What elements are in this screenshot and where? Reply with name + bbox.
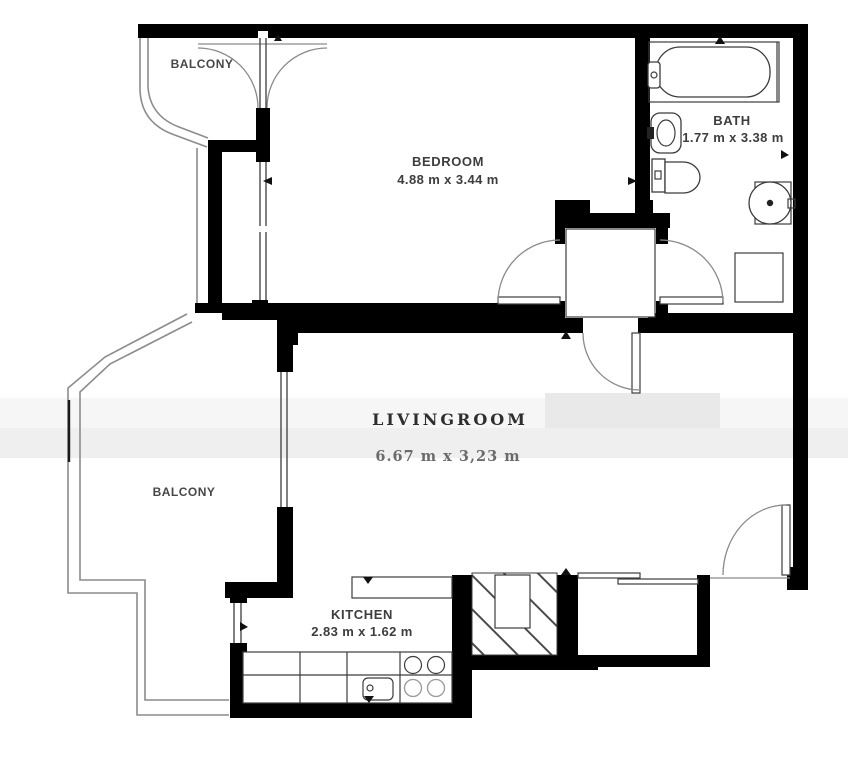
wall-balcony-left [208, 140, 222, 313]
bath-label: BATH [713, 113, 751, 128]
bedroom-balcony-door [198, 38, 327, 108]
bedroom-dimensions: 4.88 m x 3.44 m [397, 172, 498, 187]
wash-basin [647, 113, 681, 153]
wall-hall-bottom-right [638, 318, 670, 333]
hall-livingroom-door [583, 333, 640, 393]
wall-balcony-step [222, 140, 256, 152]
balcony-top-label: BALCONY [171, 57, 234, 71]
wall-bedroom-bottom [222, 303, 565, 320]
wall-bath-bottom [648, 313, 808, 333]
balcony-top-outline-outer [140, 38, 207, 147]
wall-kitchen-right [452, 575, 472, 718]
wall-bedroom-bath [635, 24, 650, 213]
scan-band [545, 393, 720, 428]
bedroom-balcony-window [260, 162, 266, 300]
marker-arrow-icon [781, 150, 789, 159]
marker-arrow-icon [561, 568, 571, 575]
wall-top [138, 24, 808, 38]
toilet [652, 159, 700, 193]
shaft-duct [495, 575, 530, 628]
balcony-outlines [68, 38, 229, 715]
wall-livingroom-top [277, 320, 565, 333]
marker-arrow-icon [240, 622, 248, 631]
hall-bath-door [660, 240, 723, 304]
balcony-left-outline-outer [68, 314, 229, 715]
livingroom-label: LIVINGROOM [372, 410, 528, 429]
balcony-left-outline-inner [80, 322, 229, 700]
wall-room-br-right [697, 575, 710, 667]
wall-hall-stub-right [638, 200, 653, 213]
bath-fixtures [647, 42, 795, 302]
balcony-left-label: BALCONY [153, 485, 216, 499]
wall-hall-top [555, 213, 670, 228]
wall-notch [258, 31, 268, 38]
hall-closet [566, 229, 655, 317]
sliding-door [578, 573, 698, 584]
hall-bedroom-door [498, 240, 560, 304]
wall-room-br-bottom [560, 655, 710, 667]
wall-kitchen-left [230, 583, 247, 603]
floorplan: BALCONY BEDROOM 4.88 m x 3.44 m BATH 1.7… [0, 0, 848, 762]
kitchen-dimensions: 2.83 m x 1.62 m [311, 624, 412, 639]
kitchen-window [234, 603, 241, 643]
wall-hall-right-post [656, 228, 668, 244]
balcony-top-outline-inner [148, 38, 208, 138]
livingroom-dimensions: 6.67 m x 3,23 m [375, 448, 520, 465]
wall-below-balcony-door [256, 108, 270, 162]
kitchen-counter [243, 652, 452, 703]
bedroom-label: BEDROOM [412, 154, 484, 169]
washing-machine [749, 182, 795, 224]
shower [735, 253, 783, 302]
wall-room-br-left [560, 575, 578, 667]
wall-right [793, 24, 808, 585]
floorplan-drawing: BALCONY BEDROOM 4.88 m x 3.44 m BATH 1.7… [0, 0, 848, 762]
wall-hall-left-post [555, 228, 565, 244]
livingroom-exit-door [710, 505, 790, 578]
wall-livingroom-left-upper [277, 320, 293, 372]
marker-arrow-icon [263, 177, 272, 185]
bathtub [648, 42, 779, 102]
kitchen-label: KITCHEN [331, 607, 393, 622]
wall-stub [195, 303, 222, 313]
wall-kitchen-bottom [230, 703, 460, 718]
wall-hall-stub-left [555, 200, 590, 213]
bath-dimensions: 1.77 m x 3.38 m [682, 130, 783, 145]
ventilation-shaft [472, 573, 557, 655]
wall-hall-bottom-left [555, 318, 583, 333]
